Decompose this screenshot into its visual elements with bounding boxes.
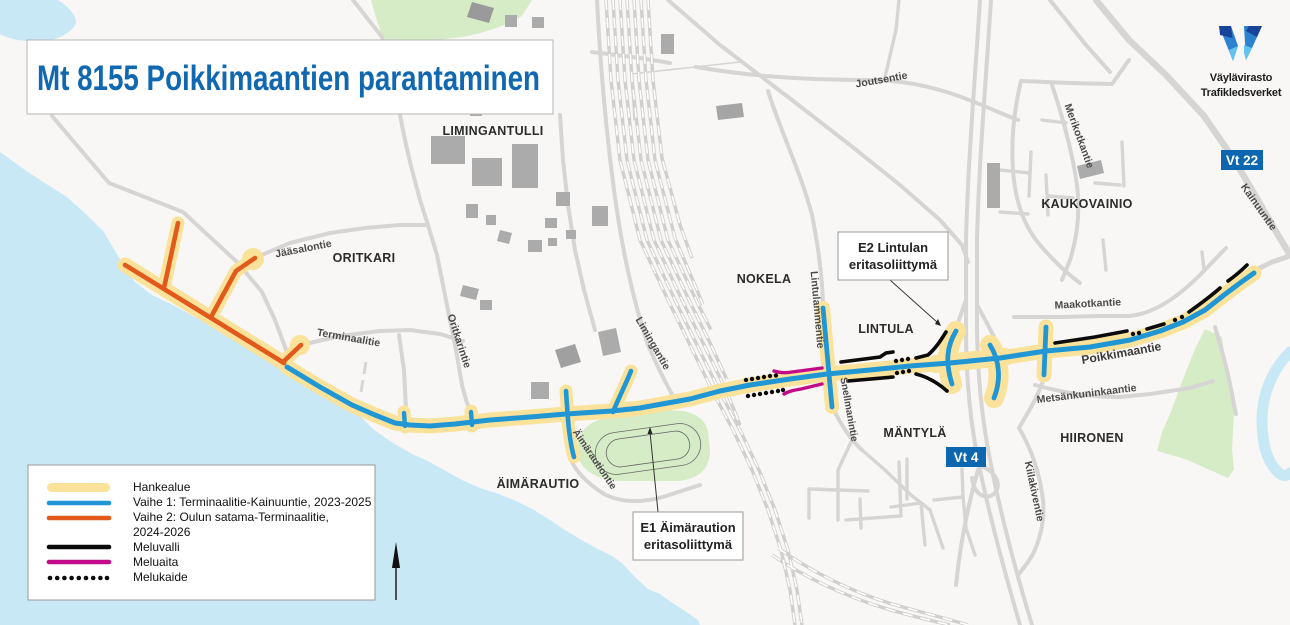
svg-text:Väylävirasto: Väylävirasto [1210,72,1273,84]
svg-text:NOKELA: NOKELA [737,272,792,286]
svg-text:ORITKARI: ORITKARI [333,251,396,265]
svg-text:LINTULA: LINTULA [858,322,914,336]
svg-text:Trafikledsverket: Trafikledsverket [1201,87,1282,99]
svg-text:KAUKOVAINIO: KAUKOVAINIO [1041,197,1132,211]
svg-text:eritasoliittymä: eritasoliittymä [849,257,938,272]
svg-text:Meluvalli: Meluvalli [133,540,180,554]
svg-text:LIMINGANTULLI: LIMINGANTULLI [442,124,543,138]
svg-text:Vt 22: Vt 22 [1226,153,1258,168]
svg-text:eritasoliittymä: eritasoliittymä [644,537,733,552]
svg-text:Hankealue: Hankealue [133,480,191,494]
svg-text:HIIRONEN: HIIRONEN [1060,431,1124,445]
svg-text:ÄIMÄRAUTIO: ÄIMÄRAUTIO [497,476,580,491]
svg-text:MÄNTYLÄ: MÄNTYLÄ [883,425,946,440]
svg-text:Vaihe 2: Oulun satama-Terminaa: Vaihe 2: Oulun satama-Terminaalitie, [133,510,329,524]
svg-text:Mt 8155 Poikkimaantien paranta: Mt 8155 Poikkimaantien parantaminen [37,59,540,98]
svg-text:Melukaide: Melukaide [133,570,188,584]
svg-text:Meluaita: Meluaita [133,555,179,569]
svg-text:E2 Lintulan: E2 Lintulan [858,240,928,255]
svg-text:Vt 4: Vt 4 [954,450,979,465]
svg-text:Vaihe 1: Terminaalitie-Kainuun: Vaihe 1: Terminaalitie-Kainuuntie, 2023-… [133,495,372,509]
svg-text:2024-2026: 2024-2026 [133,525,191,539]
svg-text:E1 Äimäraution: E1 Äimäraution [640,520,735,535]
